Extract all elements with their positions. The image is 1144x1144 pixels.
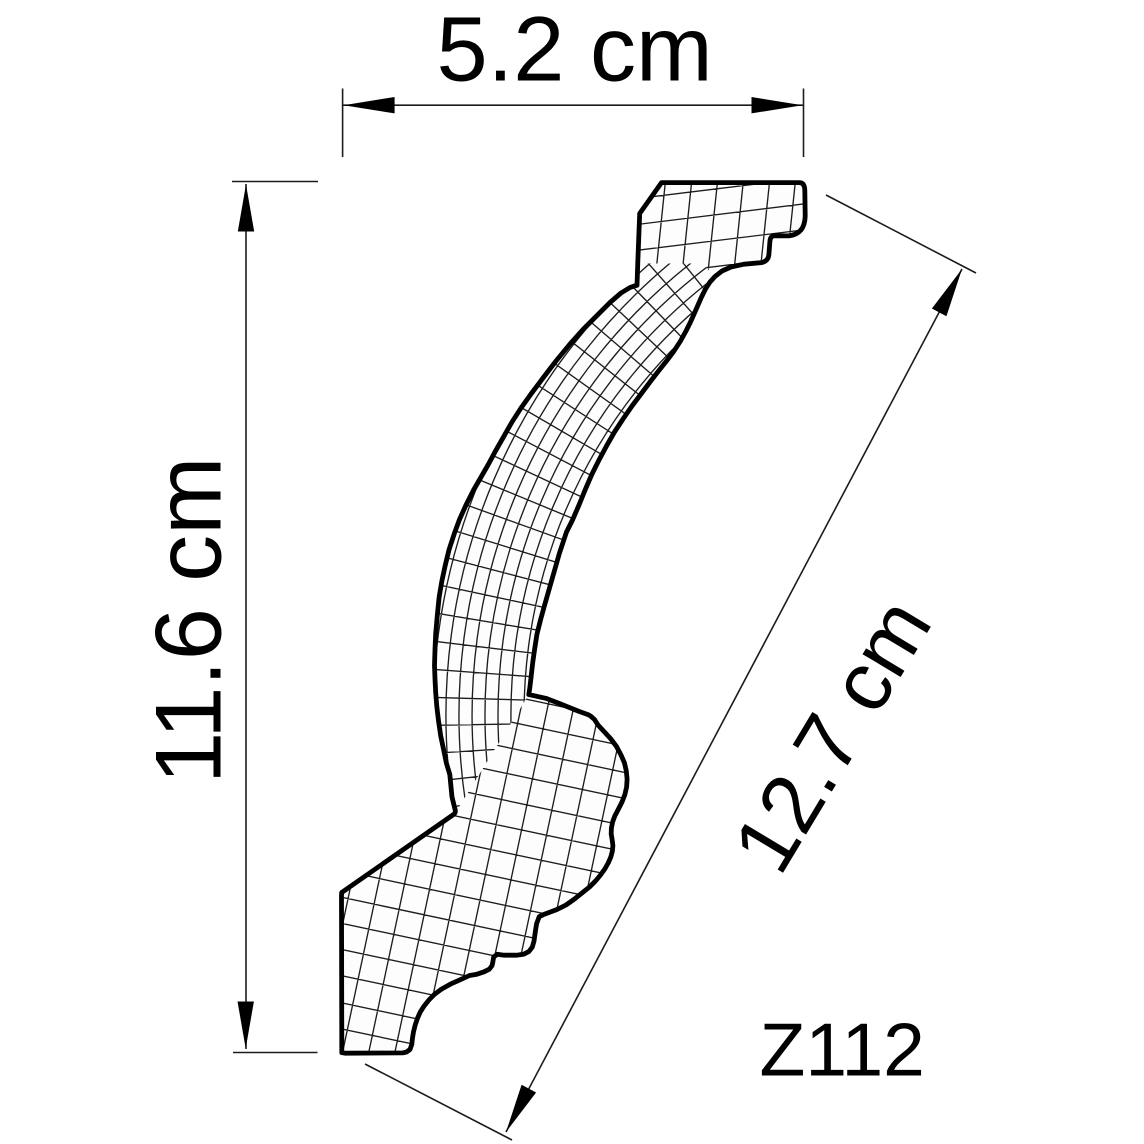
svg-text:5.2 cm: 5.2 cm	[437, 0, 713, 101]
svg-text:11.6 cm: 11.6 cm	[136, 457, 241, 784]
svg-text:Z112: Z112	[760, 1008, 925, 1092]
